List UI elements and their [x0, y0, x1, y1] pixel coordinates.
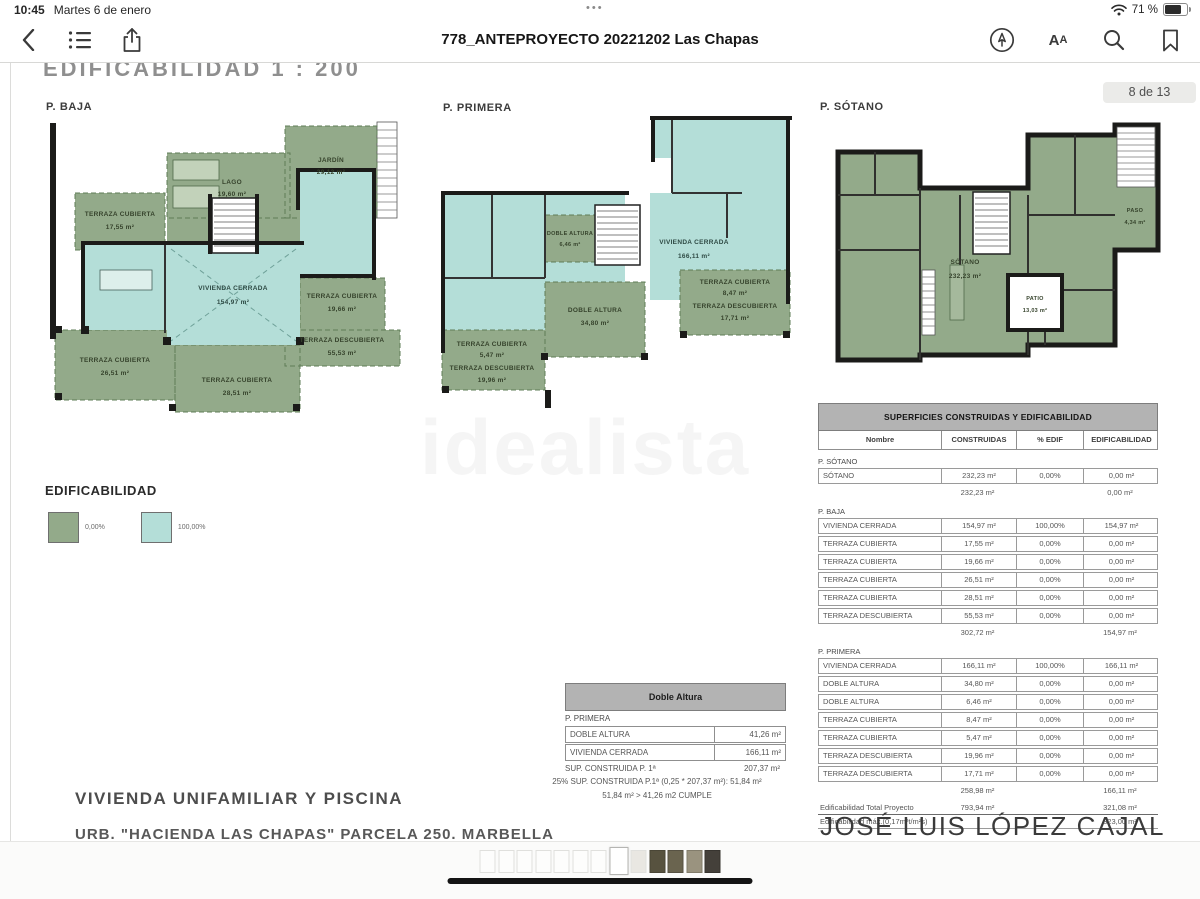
room-label: TERRAZA CUBIERTA — [85, 211, 156, 218]
table-row: VIVIENDA CERRADA 154,97 m² 100,00% 154,9… — [818, 518, 1158, 534]
search-icon[interactable] — [1100, 26, 1128, 54]
room-label: TERRAZA CUBIERTA — [457, 341, 528, 348]
cell: SÓTANO — [819, 469, 941, 483]
page-thumbnail[interactable] — [572, 850, 588, 873]
cell: 166,11 m² — [941, 659, 1016, 673]
cell: 232,23 m² — [941, 469, 1016, 483]
table-row: TERRAZA CUBIERTA 5,47 m² 0,00% 0,00 m² — [818, 730, 1158, 746]
room-area: 28,51 m² — [223, 390, 252, 397]
page-thumbnail[interactable] — [631, 850, 647, 873]
cell: 0,00 m² — [1083, 555, 1159, 569]
room-area: 19,96 m² — [478, 377, 507, 384]
room-area: 5,47 m² — [480, 352, 505, 359]
room-area: 13,03 m² — [1023, 307, 1047, 314]
page-thumbnail[interactable] — [686, 850, 702, 873]
battery-percent: 71 % — [1132, 4, 1158, 16]
sheet-title-wrap: EDIFICABILIDAD 1 : 200 — [43, 63, 483, 84]
cell: 5,47 m² — [941, 731, 1016, 745]
subtotal-row: 258,98 m² 166,11 m² — [818, 784, 1158, 798]
floor-plan-p-primera: DOBLE ALTURA 6,46 m² VIVIENDA CERRADA 16… — [432, 98, 792, 420]
cell: 166,11 m² — [1083, 659, 1159, 673]
cell: TERRAZA CUBIERTA — [819, 591, 941, 605]
room-area: 8,47 m² — [723, 290, 748, 297]
pdf-toolbar: 778_ANTEPROYECTO 20221202 Las Chapas AA — [0, 20, 1200, 63]
doble-altura-note-1: 25% SUP. CONSTRUIDA P.1ª (0,25 * 207,37 … — [512, 777, 802, 786]
room-area: 19,66 m² — [328, 306, 357, 313]
cell: VIVIENDA CERRADA — [819, 659, 941, 673]
cell: 28,51 m² — [941, 591, 1016, 605]
cell: TERRAZA DESCUBIERTA — [819, 767, 941, 781]
page-thumbnail[interactable] — [591, 850, 607, 873]
status-time: 10:45 — [14, 3, 45, 17]
room-area: 6,46 m² — [559, 241, 580, 248]
cell: 17,71 m² — [941, 767, 1016, 781]
cell: 0,00% — [1016, 555, 1083, 569]
cell: TERRAZA CUBIERTA — [819, 731, 941, 745]
room-label: DOBLE ALTURA — [547, 231, 593, 237]
cell: 0,00 m² — [1082, 486, 1158, 500]
table-row: TERRAZA CUBIERTA 26,51 m² 0,00% 0,00 m² — [818, 572, 1158, 588]
room-area: 166,11 m² — [678, 253, 711, 260]
legend-label-100: 100,00% — [178, 524, 206, 531]
cell: 17,55 m² — [941, 537, 1016, 551]
cell-name: VIVIENDA CERRADA — [566, 745, 714, 760]
architect-name: JOSÉ LUIS LÓPEZ CAJAL — [810, 811, 1165, 842]
table-row: DOBLE ALTURA 41,26 m² — [565, 726, 786, 743]
cell: TERRAZA CUBIERTA — [819, 555, 941, 569]
section-label: P. SÓTANO — [818, 455, 1158, 468]
legend-swatch-cyan — [141, 512, 172, 543]
floor-plan-p-sotano: SÓTANO 232,23 m² PATIO 13,03 m² PASO 4,3… — [815, 100, 1190, 400]
room-label: SÓTANO — [950, 257, 979, 266]
cell: 302,72 m² — [940, 626, 1015, 640]
table-row: TERRAZA DESCUBIERTA 17,71 m² 0,00% 0,00 … — [818, 766, 1158, 782]
section-label: P. BAJA — [818, 505, 1158, 518]
table-row: TERRAZA DESCUBIERTA 19,96 m² 0,00% 0,00 … — [818, 748, 1158, 764]
legend-label-0: 0,00% — [85, 524, 105, 531]
room-area: 26,51 m² — [101, 370, 130, 377]
cell: 0,00 m² — [1083, 591, 1159, 605]
table-row: VIVIENDA CERRADA 166,11 m² 100,00% 166,1… — [818, 658, 1158, 674]
cell-value: 41,26 m² — [714, 727, 785, 742]
cell: 0,00 m² — [1083, 749, 1159, 763]
cell: 0,00 m² — [1083, 537, 1159, 551]
cell: 0,00% — [1016, 749, 1083, 763]
cell: DOBLE ALTURA — [819, 677, 941, 691]
table-row: VIVIENDA CERRADA 166,11 m² — [565, 744, 786, 761]
page-thumbnail-current[interactable] — [609, 847, 628, 875]
cell-name: DOBLE ALTURA — [566, 727, 714, 742]
room-area: 154,97 m² — [217, 299, 250, 306]
cell: DOBLE ALTURA — [819, 695, 941, 709]
cell: TERRAZA DESCUBIERTA — [819, 609, 941, 623]
bookmark-icon[interactable] — [1156, 26, 1184, 54]
cell: 232,23 m² — [940, 486, 1015, 500]
cell: 0,00% — [1016, 731, 1083, 745]
cell-value: 166,11 m² — [714, 745, 785, 760]
doble-altura-section: P. PRIMERA — [565, 711, 786, 726]
table-header-row: Nombre CONSTRUIDAS % EDIF EDIFICABILIDAD — [818, 431, 1158, 450]
col-nombre: Nombre — [819, 431, 941, 449]
doble-altura-table: Doble Altura P. PRIMERA DOBLE ALTURA 41,… — [565, 683, 786, 776]
floor-plan-p-baja: JARDÍN 29,12 m² LAGO 19,60 m² TERRAZA CU… — [45, 98, 420, 450]
cell-name: SUP. CONSTRUIDA P. 1ª — [565, 762, 713, 776]
room-label: TERRAZA DESCUBIERTA — [450, 365, 535, 372]
page-edge-line — [10, 63, 11, 843]
sheet-title: EDIFICABILIDAD 1 : 200 — [43, 63, 483, 82]
ipad-screen: 10:45Martes 6 de enero ••• 71 % — [0, 0, 1200, 899]
table-total-row: SUP. CONSTRUIDA P. 1ª 207,37 m² — [565, 762, 786, 776]
cell-value: 207,37 m² — [713, 762, 784, 776]
home-indicator[interactable] — [448, 878, 753, 884]
cell: 100,00% — [1016, 519, 1083, 533]
table-row: TERRAZA CUBIERTA 8,47 m² 0,00% 0,00 m² — [818, 712, 1158, 728]
page-thumbnail[interactable] — [649, 850, 665, 873]
cell: 154,97 m² — [1083, 519, 1159, 533]
cell: 0,00% — [1016, 537, 1083, 551]
cell: 0,00% — [1016, 677, 1083, 691]
page-thumbnails — [480, 847, 721, 875]
subtotal-row: 232,23 m² 0,00 m² — [818, 486, 1158, 500]
page-thumbnail[interactable] — [535, 850, 551, 873]
section-label: P. PRIMERA — [818, 645, 1158, 658]
cell: 0,00 m² — [1083, 713, 1159, 727]
table-row: TERRAZA CUBIERTA 28,51 m² 0,00% 0,00 m² — [818, 590, 1158, 606]
cell: 0,00% — [1016, 609, 1083, 623]
status-bar: 10:45Martes 6 de enero ••• 71 % — [0, 0, 1200, 20]
room-area: 29,12 m² — [317, 169, 346, 176]
cell: 154,97 m² — [941, 519, 1016, 533]
cell: 154,97 m² — [1082, 626, 1158, 640]
cell: 19,66 m² — [941, 555, 1016, 569]
cell: 0,00% — [1016, 713, 1083, 727]
page-thumbnail[interactable] — [705, 850, 721, 873]
wifi-icon — [1111, 4, 1127, 16]
doble-altura-title: Doble Altura — [565, 683, 786, 711]
cell: 0,00% — [1016, 767, 1083, 781]
cell: 100,00% — [1016, 659, 1083, 673]
col-edificabilidad: EDIFICABILIDAD — [1083, 431, 1159, 449]
thumbnail-bar — [0, 841, 1200, 899]
project-title: VIVIENDA UNIFAMILIAR Y PISCINA — [75, 789, 403, 809]
room-area: 4,34 m² — [1124, 219, 1145, 226]
room-label: JARDÍN — [318, 155, 344, 164]
multitask-dots-icon[interactable]: ••• — [586, 2, 604, 14]
superficies-table: SUPERFICIES CONSTRUIDAS Y EDIFICABILIDAD… — [818, 403, 1158, 829]
cell: 0,00 m² — [1083, 731, 1159, 745]
page-thumbnail[interactable] — [517, 850, 533, 873]
table-row: SÓTANO 232,23 m² 0,00% 0,00 m² — [818, 468, 1158, 484]
markup-pencil-icon[interactable] — [988, 26, 1016, 54]
cell: 0,00% — [1016, 573, 1083, 587]
room-label: TERRAZA CUBIERTA — [307, 293, 378, 300]
status-time-date: 10:45Martes 6 de enero — [14, 3, 151, 17]
col-edif: % EDIF — [1016, 431, 1083, 449]
table-title: SUPERFICIES CONSTRUIDAS Y EDIFICABILIDAD — [818, 403, 1158, 431]
cell: 0,00% — [1016, 469, 1083, 483]
table-row: TERRAZA CUBIERTA 17,55 m² 0,00% 0,00 m² — [818, 536, 1158, 552]
battery-icon — [1163, 3, 1188, 16]
cell: 0,00 m² — [1083, 469, 1159, 483]
cell: TERRAZA CUBIERTA — [819, 573, 941, 587]
legend-title: EDIFICABILIDAD — [45, 483, 157, 498]
room-label: DOBLE ALTURA — [568, 307, 622, 314]
status-date: Martes 6 de enero — [54, 3, 151, 17]
cell: 0,00 m² — [1083, 695, 1159, 709]
legend: 0,00% 100,00% — [48, 512, 206, 543]
table-row: DOBLE ALTURA 34,80 m² 0,00% 0,00 m² — [818, 676, 1158, 692]
room-label: PATIO — [1026, 296, 1044, 302]
room-area: 34,80 m² — [581, 320, 610, 327]
page-thumbnail[interactable] — [554, 850, 570, 873]
cell: 0,00 m² — [1083, 609, 1159, 623]
cell: TERRAZA CUBIERTA — [819, 713, 941, 727]
page-thumbnail[interactable] — [480, 850, 496, 873]
cell: 8,47 m² — [941, 713, 1016, 727]
page-thumbnail[interactable] — [498, 850, 514, 873]
doble-altura-note-2: 51,84 m² > 41,26 m2 CUMPLE — [512, 791, 802, 800]
cell: 258,98 m² — [940, 784, 1015, 798]
table-row: TERRAZA CUBIERTA 19,66 m² 0,00% 0,00 m² — [818, 554, 1158, 570]
room-label: LAGO — [222, 179, 242, 186]
room-area: 232,23 m² — [949, 273, 982, 280]
room-label: VIVIENDA CERRADA — [198, 285, 268, 292]
room-label: TERRAZA CUBIERTA — [80, 357, 151, 364]
room-area: 55,53 m² — [328, 350, 357, 357]
col-construidas: CONSTRUIDAS — [941, 431, 1016, 449]
cell: 55,53 m² — [941, 609, 1016, 623]
room-label: VIVIENDA CERRADA — [659, 239, 729, 246]
cell: 0,00% — [1016, 695, 1083, 709]
cell: 0,00 m² — [1083, 677, 1159, 691]
page-thumbnail[interactable] — [668, 850, 684, 873]
cell: 0,00 m² — [1083, 573, 1159, 587]
room-area: 17,71 m² — [721, 315, 750, 322]
cell: TERRAZA CUBIERTA — [819, 537, 941, 551]
cell: VIVIENDA CERRADA — [819, 519, 941, 533]
text-settings-icon[interactable]: AA — [1044, 26, 1072, 54]
cell: 6,46 m² — [941, 695, 1016, 709]
room-label: TERRAZA DESCUBIERTA — [693, 303, 778, 310]
room-area: 17,55 m² — [106, 224, 135, 231]
subtotal-row: 302,72 m² 154,97 m² — [818, 626, 1158, 640]
cell: 166,11 m² — [1082, 784, 1158, 798]
room-area: 19,60 m² — [218, 191, 247, 198]
room-label: TERRAZA CUBIERTA — [202, 377, 273, 384]
cell: 26,51 m² — [941, 573, 1016, 587]
cell: 0,00 m² — [1083, 767, 1159, 781]
legend-swatch-green — [48, 512, 79, 543]
cell: 34,80 m² — [941, 677, 1016, 691]
cell: TERRAZA DESCUBIERTA — [819, 749, 941, 763]
cell: 19,96 m² — [941, 749, 1016, 763]
table-row: TERRAZA DESCUBIERTA 55,53 m² 0,00% 0,00 … — [818, 608, 1158, 624]
cell: 0,00% — [1016, 591, 1083, 605]
table-row: DOBLE ALTURA 6,46 m² 0,00% 0,00 m² — [818, 694, 1158, 710]
room-label: PASO — [1127, 208, 1144, 214]
room-label: TERRAZA CUBIERTA — [700, 279, 771, 286]
room-label: TERRAZA DESCUBIERTA — [300, 337, 385, 344]
